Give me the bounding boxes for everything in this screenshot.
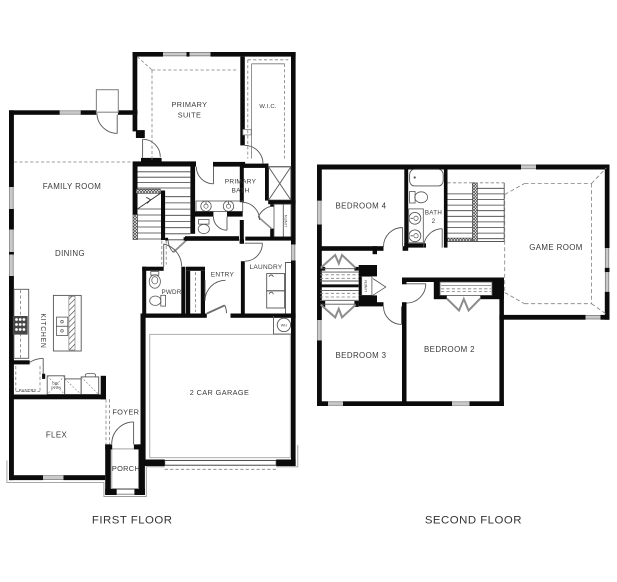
- svg-text:PRIMARY: PRIMARY: [172, 100, 208, 109]
- svg-text:BEDROOM 4: BEDROOM 4: [336, 202, 387, 211]
- svg-text:DINING: DINING: [55, 249, 85, 258]
- svg-text:BEDROOM 3: BEDROOM 3: [336, 351, 387, 360]
- svg-text:SECOND FLOOR: SECOND FLOOR: [425, 515, 522, 527]
- svg-text:FAMILY ROOM: FAMILY ROOM: [43, 182, 101, 191]
- svg-text:WH: WH: [281, 323, 288, 327]
- svg-text:2 CAR GARAGE: 2 CAR GARAGE: [190, 388, 250, 397]
- svg-text:SUITE: SUITE: [178, 111, 202, 120]
- svg-text:FOYER: FOYER: [112, 408, 139, 417]
- svg-text:LINEN: LINEN: [364, 280, 368, 292]
- svg-text:2: 2: [432, 218, 436, 225]
- svg-text:BEDROOM 2: BEDROOM 2: [424, 345, 475, 354]
- svg-text:GAME ROOM: GAME ROOM: [529, 243, 583, 252]
- svg-text:BATH: BATH: [231, 188, 249, 195]
- svg-text:BATH: BATH: [425, 210, 442, 217]
- svg-text:LINEN: LINEN: [283, 215, 288, 227]
- svg-text:LAUNDRY: LAUNDRY: [249, 264, 282, 271]
- svg-text:FIRST FLOOR: FIRST FLOOR: [92, 515, 173, 527]
- svg-text:FLEX: FLEX: [46, 431, 68, 440]
- svg-text:ENTRY: ENTRY: [211, 272, 235, 279]
- svg-text:OVEN: OVEN: [51, 386, 62, 390]
- svg-text:W.I.C.: W.I.C.: [259, 104, 276, 110]
- svg-text:PORCH: PORCH: [112, 464, 140, 473]
- svg-text:KITCHEN: KITCHEN: [39, 313, 46, 348]
- svg-text:PRIMARY: PRIMARY: [225, 179, 257, 186]
- svg-text:DBL: DBL: [52, 381, 59, 385]
- svg-text:PANTRY: PANTRY: [19, 388, 37, 393]
- svg-text:PWDR: PWDR: [161, 289, 181, 296]
